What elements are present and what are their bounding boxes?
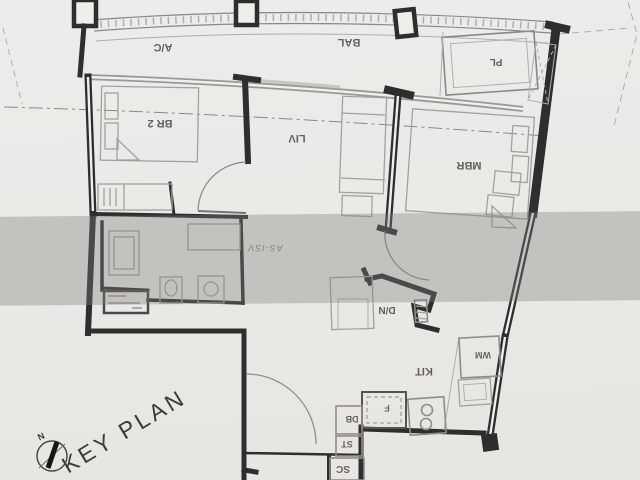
balcony-railing — [92, 12, 553, 43]
door-leaf-br2 — [198, 211, 246, 213]
key-plan-annotation: KEY PLAN N — [36, 384, 191, 478]
wardrobe-mbr — [493, 171, 521, 196]
room-label-liv: LIV — [288, 132, 306, 144]
column — [236, 1, 257, 25]
door-arc-br2 — [198, 162, 246, 210]
burner — [422, 405, 433, 416]
floorplan-scan: A/C BAL PL BR 2 LIV MBR D/N KIT WM F DB … — [0, 0, 640, 480]
fixture-label-db: DB — [345, 414, 358, 424]
fixture-label-fridge: F — [384, 403, 390, 413]
column — [74, 0, 96, 26]
column — [395, 9, 417, 37]
watermark-text: AS-ISV — [247, 243, 284, 253]
balcony-inner-wall — [86, 77, 523, 109]
pillow — [511, 125, 529, 152]
door-arc-entry — [246, 374, 316, 444]
side-table — [342, 195, 373, 216]
room-label-ac: A/C — [153, 41, 172, 53]
compass-needle — [48, 442, 57, 468]
wardrobe-br2 — [98, 184, 172, 210]
room-label-dn: D/N — [378, 304, 395, 315]
bedroom2-furniture — [98, 86, 199, 210]
fixture-label-sc: SC — [336, 463, 350, 474]
fixture-label-st: ST — [341, 439, 353, 449]
dining-chairs — [338, 299, 368, 329]
room-label-kit: KIT — [415, 365, 433, 377]
room-label-mbr: MBR — [456, 159, 481, 171]
north-label: N — [36, 431, 46, 443]
pillow — [105, 123, 118, 149]
key-plan-title: KEY PLAN — [57, 384, 190, 478]
sink — [458, 378, 492, 406]
centerline-dashdot — [4, 107, 545, 136]
fixture-label-wm: WM — [475, 350, 491, 360]
floorplan-drawing: A/C BAL PL BR 2 LIV MBR D/N KIT WM F DB … — [0, 0, 640, 480]
pillow — [105, 93, 118, 119]
room-label-bal: BAL — [337, 36, 360, 48]
room-label-br2: BR 2 — [147, 117, 172, 129]
watermark-band: AS-ISV — [0, 211, 640, 306]
fridge-box — [362, 392, 406, 428]
blanket-fold — [117, 139, 139, 160]
structural-columns — [74, 0, 416, 37]
burner — [421, 419, 432, 430]
room-label-pl: PL — [490, 56, 503, 67]
